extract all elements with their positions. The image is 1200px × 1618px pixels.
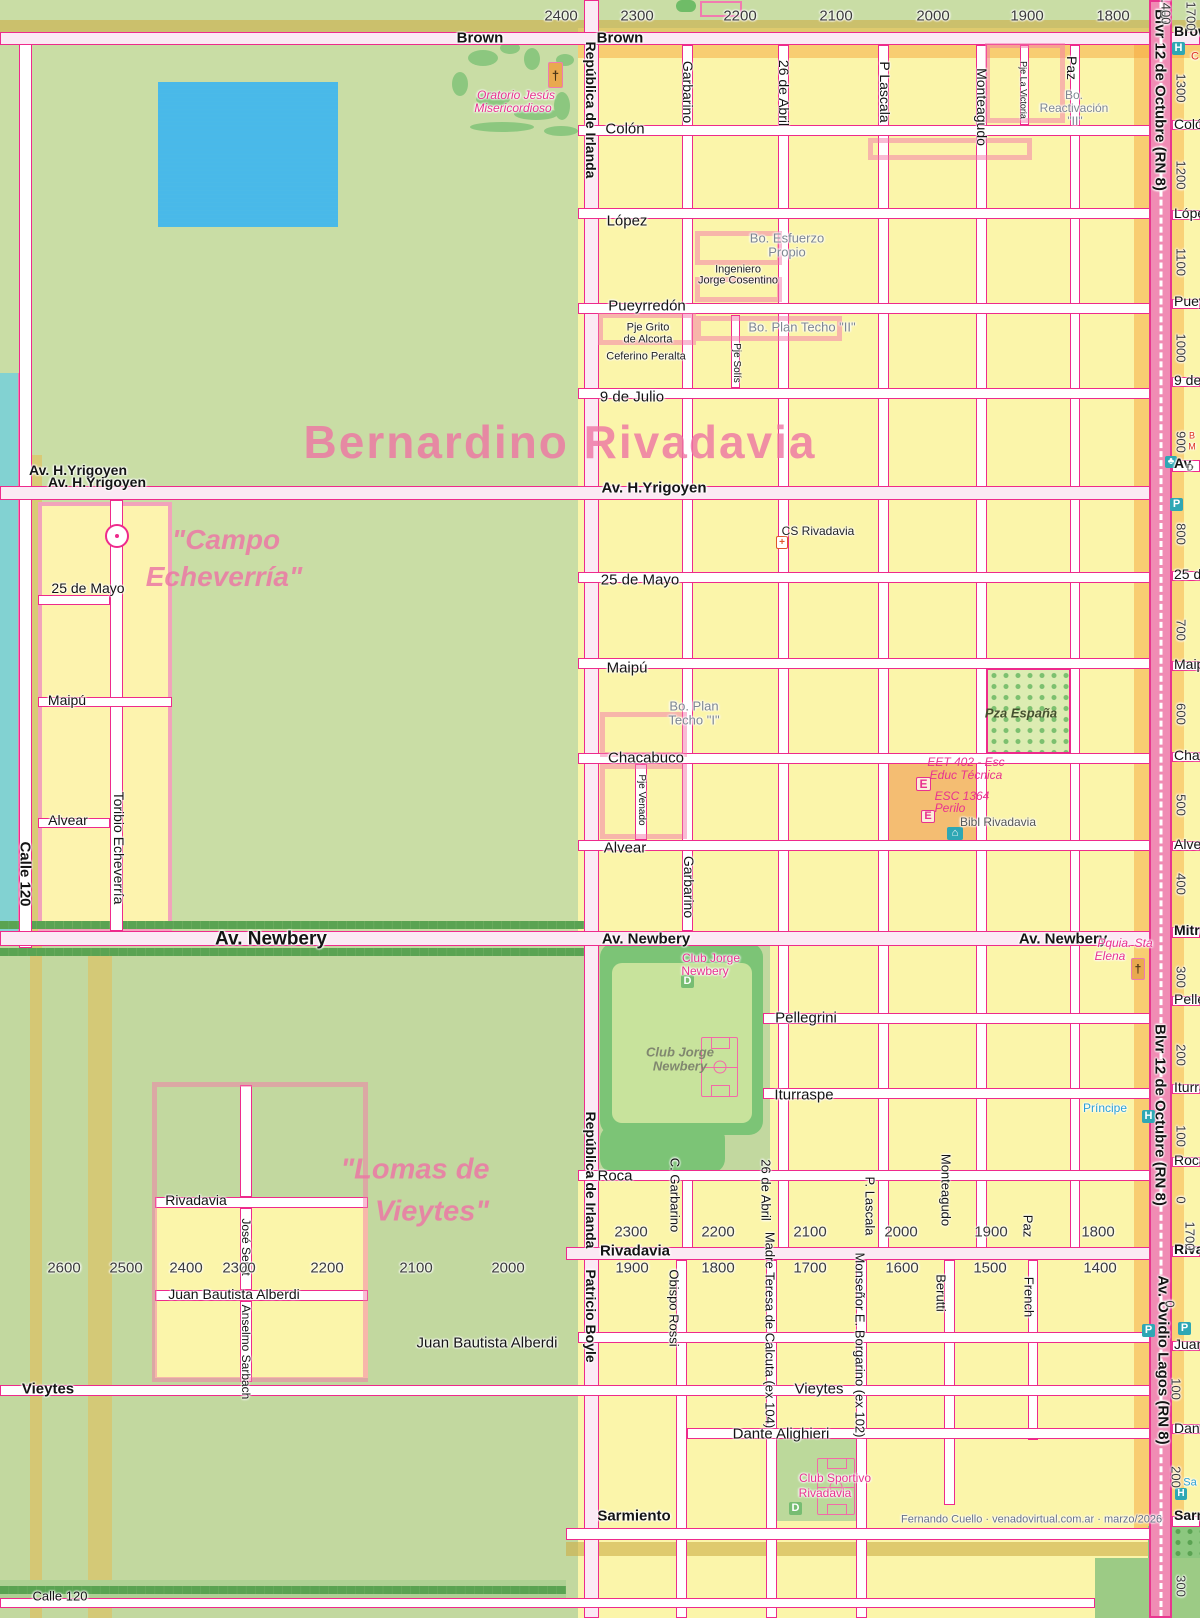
poi-label-principe: Príncipe xyxy=(1083,1102,1127,1114)
street-paz xyxy=(1070,45,1080,1260)
street-label-26-de-abril: 26 de Abril xyxy=(777,60,791,126)
street-label-jb-alberdi: Juan Bautista Alberdi xyxy=(417,1336,558,1351)
street-label-vieytes: Vieytes xyxy=(22,1382,74,1397)
street-label-garbarino: Garbarino xyxy=(682,856,696,918)
street-sarmiento xyxy=(566,1528,1172,1540)
street-9-de-julio xyxy=(578,388,1172,399)
street-label-garbarino: Garbarino xyxy=(681,61,695,123)
block-number: 2000 xyxy=(491,1261,524,1276)
street-label-alvear: Alvear xyxy=(604,841,647,856)
street-label-calle-120: Calle 120 xyxy=(18,841,33,906)
margin-number: 700 xyxy=(1175,619,1188,641)
barrio-label-reactivacion: "II" xyxy=(1067,115,1082,127)
poi-label-cs-rivadavia: CS Rivadavia xyxy=(782,525,855,537)
poi-label-club-newbery: Club Jorge xyxy=(682,952,740,964)
shrub xyxy=(452,72,468,96)
poi-label-pquia: Elena xyxy=(1095,950,1126,962)
margin-number: 1400 xyxy=(1160,0,1173,24)
block-number: 1900 xyxy=(615,1261,648,1276)
street-label-iturraspe: Iturraspe xyxy=(774,1088,833,1103)
edge-label: M xyxy=(1188,443,1196,452)
street-label-anselmo-sarbach: Anselmo Sarbach xyxy=(240,1305,252,1400)
poi-label-eet: Educ Técnica xyxy=(930,769,1003,781)
street-label-madre-teresa: Madre Teresa de Calcuta (ex 104) xyxy=(764,1232,777,1428)
marsh-area xyxy=(158,82,338,227)
margin-label: Sarmiento xyxy=(1174,1508,1200,1522)
street-label-av-newbery: Av. Newbery xyxy=(1019,932,1107,947)
block-number: 1800 xyxy=(701,1261,734,1276)
barrio-label-techo2: Bo. Plan Techo "II" xyxy=(748,321,855,334)
street-label-25-de-mayo: 25 de Mayo xyxy=(601,573,679,588)
margin-number: 1300 xyxy=(1175,74,1188,103)
street-label-monteagudo: Monteagudo xyxy=(975,68,989,146)
street-label-brown: Brown xyxy=(597,31,644,46)
block-number: 1800 xyxy=(1096,9,1129,24)
margin-number: 0 xyxy=(1175,1196,1188,1203)
block-number: 2300 xyxy=(222,1261,255,1276)
hospital-icon: H xyxy=(1175,1488,1187,1500)
church-icon: † xyxy=(548,62,563,88)
block-number: 1500 xyxy=(973,1261,1006,1276)
margin-number: 1100 xyxy=(1175,248,1188,276)
region-title: Bernardino Rivadavia xyxy=(304,419,817,465)
barrio-label-reactivacion: Reactivación xyxy=(1040,102,1109,114)
edge-label: D xyxy=(1187,464,1194,473)
barrio-label-reactivacion: Bo. xyxy=(1065,89,1083,101)
city-map[interactable]: ††+EE⌂DDHHHPPP♣2400230022002100200019001… xyxy=(0,0,1200,1618)
street-label-pje-venado: Pje Venado xyxy=(636,774,646,825)
street-label-pellegrini: Pellegrini xyxy=(775,1011,837,1026)
fuel-icon: P xyxy=(1170,498,1183,511)
poi-label-esc1364: Perilo xyxy=(935,802,966,814)
street-av-newbery xyxy=(0,931,1172,946)
school-icon: E xyxy=(921,810,935,823)
shrub xyxy=(544,126,578,136)
street-label-9-de-julio: 9 de Julio xyxy=(600,390,664,405)
street-25-mayo-oeste xyxy=(38,595,110,605)
street-monteagudo xyxy=(976,45,987,1260)
barrio-label-techo1: Techo "I" xyxy=(668,714,719,727)
street-label-rivadavia: Rivadavia xyxy=(165,1193,226,1207)
margin-number: 1700 xyxy=(1185,2,1198,31)
block-number: 2100 xyxy=(819,9,852,24)
poi-label-sa: Sa xyxy=(1183,1478,1196,1489)
margin-number: 1000 xyxy=(1175,334,1188,363)
street-lopez xyxy=(578,208,1172,219)
margin-number: 100 xyxy=(1175,1125,1188,1147)
margin-label: Pellegrini xyxy=(1174,992,1200,1006)
street-label-rivadavia: Rivadavia xyxy=(600,1244,670,1259)
street-label-pueyrredon: Pueyrredón xyxy=(608,299,686,314)
street-label-av-h-yrigoyen: Av. H.Yrigoyen xyxy=(48,475,146,489)
margin-number: 1200 xyxy=(1175,161,1188,190)
margin-number: 300 xyxy=(1175,1575,1188,1597)
block-number: 2000 xyxy=(916,9,949,24)
margin-number: 400 xyxy=(1175,873,1188,895)
street-calle-120-sur xyxy=(0,1598,1095,1608)
street-label-av-newbery: Av. Newbery xyxy=(602,932,690,947)
street-label-av-h-yrigoyen: Av. H.Yrigoyen xyxy=(601,481,706,496)
block-number: 2400 xyxy=(169,1261,202,1276)
street-label-p-lascala: P. Lascala xyxy=(864,1176,877,1235)
street-av-h-yrigoyen xyxy=(0,486,1172,500)
street-label-cosentino: Jorge Cosentino xyxy=(698,276,778,287)
street-label-dante: Dante Alighieri xyxy=(733,1427,830,1442)
barrio-block-outline xyxy=(868,138,1032,160)
poi-label-club-sportivo: Rivadavia xyxy=(799,1487,852,1499)
shrub xyxy=(554,92,570,120)
street-label-pje-la-victoria: Pje La Victoria xyxy=(1019,61,1028,119)
sarmiento-road-flank xyxy=(566,1542,1200,1556)
barrio-label-techo1: Bo. Plan xyxy=(669,700,718,713)
area-label-campo: Echeverría" xyxy=(146,563,303,591)
street-republica-irlanda xyxy=(584,0,599,1618)
edge-label: C xyxy=(1191,52,1199,63)
street-label-toribio: Toribio Echeverría xyxy=(112,792,126,905)
margin-label: Chacabuco xyxy=(1174,748,1200,762)
fuel-icon: P xyxy=(1142,1324,1155,1337)
block-number: 2300 xyxy=(614,1225,647,1240)
street-26-de-abril xyxy=(778,45,789,1260)
street-label-maipu: Maipú xyxy=(607,661,648,676)
area-label-lomas: Vieytes" xyxy=(375,1198,489,1227)
park-newbery-south xyxy=(600,1125,725,1173)
margin-number: 200 xyxy=(1175,1044,1188,1066)
street-label-republica-irlanda: República de Irlanda xyxy=(584,1112,598,1249)
street-label-chacabuco: Chacabuco xyxy=(608,751,684,766)
street-label-sarmiento: Sarmiento xyxy=(597,1509,670,1524)
sports-icon: D xyxy=(789,1502,802,1515)
street-label-paz: Paz xyxy=(1065,56,1079,80)
shrub xyxy=(468,50,498,66)
street-label-c-garbarino: C. Garbarino xyxy=(669,1158,682,1232)
street-label-lopez: López xyxy=(607,214,648,229)
attribution: Fernando Cuello · venadovirtual.com.ar ·… xyxy=(901,1515,1162,1526)
street-label-berutti: Berutti xyxy=(935,1274,948,1312)
street-label-vieytes: Vieytes xyxy=(795,1382,844,1397)
barrio-label-esfuerzo: Bo. Esfuerzo xyxy=(750,232,824,245)
block-number: 2300 xyxy=(620,9,653,24)
roundabout-icon xyxy=(105,524,129,548)
margin-label: Roca xyxy=(1174,1153,1200,1167)
edge-label: B xyxy=(1189,432,1195,441)
poi-label-club-newbery-field: Newbery xyxy=(653,1060,707,1073)
poi-label-pza-espana: Pza España xyxy=(985,707,1057,720)
street-label-av-newbery: Av. Newbery xyxy=(215,930,327,949)
poi-label-club-sportivo: Club Sportivo xyxy=(799,1472,871,1484)
block-number: 1800 xyxy=(1081,1225,1114,1240)
margin-label: Mitre xyxy=(1174,923,1200,937)
shrub xyxy=(470,122,534,132)
street-label-paz: Paz xyxy=(1022,1215,1035,1237)
poi-label-pquia: Pquia. Sta xyxy=(1097,937,1152,949)
street-label-blvd: Blvr 12 de Octubre (RN 8) xyxy=(1153,1024,1168,1206)
block-number: 2000 xyxy=(884,1225,917,1240)
block-number: 1900 xyxy=(1010,9,1043,24)
margin-label: Iturraspe xyxy=(1174,1080,1200,1094)
area-label-lomas: "Lomas de xyxy=(340,1156,489,1185)
margin-number: 1700 xyxy=(1184,1222,1197,1251)
poi-label-oratorio: Misericordioso xyxy=(474,102,551,114)
street-label-republica-irlanda: República de Irlanda xyxy=(584,42,598,179)
margin-label: López xyxy=(1174,206,1200,220)
margin-number: 800 xyxy=(1175,523,1188,545)
brown-road-flank xyxy=(578,45,1200,58)
block-number: 2200 xyxy=(310,1261,343,1276)
street-label-grito-alcorta: de Alcorta xyxy=(624,335,673,346)
margin-label: Juan Bautista Alberdi xyxy=(1174,1337,1200,1351)
street-label-borgarino: Monseñor E. Borgarino (ex 102) xyxy=(854,1253,867,1438)
block-number: 1400 xyxy=(1083,1261,1116,1276)
block-number: 1600 xyxy=(885,1261,918,1276)
poi-label-eet: EET 402 - Esc xyxy=(927,756,1004,768)
calle120-road-band xyxy=(88,950,112,1618)
margin-number: 300 xyxy=(1175,966,1188,988)
fuel-icon: P xyxy=(1178,1322,1191,1335)
church-icon: † xyxy=(1131,958,1145,980)
street-label-calle-120: Calle 120 xyxy=(33,1590,88,1603)
street-label-grito-alcorta: Pje Grito xyxy=(627,323,670,334)
street-label-roca: Roca xyxy=(597,1169,632,1184)
street-label-colon: Colón xyxy=(605,122,644,137)
barrio-label-esfuerzo: Propio xyxy=(768,246,806,259)
poi-label-club-newbery-field: Club Jorge xyxy=(646,1046,714,1059)
hospital-icon: H xyxy=(1172,42,1185,55)
margin-number: 600 xyxy=(1175,703,1188,725)
top-green-blob xyxy=(676,0,696,12)
street-label-25-de-mayo: 25 de Mayo xyxy=(51,581,124,595)
street-label-26-de-abril: 26 de Abril xyxy=(760,1159,773,1220)
block-number: 2600 xyxy=(47,1261,80,1276)
block-number: 2200 xyxy=(723,9,756,24)
street-label-patricio-boyle: Patricio Boyle xyxy=(584,1269,598,1362)
street-p-lascala xyxy=(878,45,889,1260)
street-label-brown: Brown xyxy=(457,31,504,46)
street-maipu xyxy=(578,658,1172,669)
block-number: 2400 xyxy=(544,9,577,24)
street-label-ceferino: Ceferino Peralta xyxy=(606,352,686,363)
street-label-p-lascala: P Lascala xyxy=(878,61,892,122)
margin-label: Pueyrredón xyxy=(1174,294,1200,308)
street-alvear xyxy=(578,840,1172,851)
street-label-monteagudo: Monteagudo xyxy=(940,1154,953,1226)
street-label-jb-alberdi: Juan Bautista Alberdi xyxy=(168,1287,300,1301)
margin-label: Maipú xyxy=(1174,657,1200,671)
area-label-campo: "Campo xyxy=(172,526,280,554)
block-number: 1700 xyxy=(793,1261,826,1276)
street-colon xyxy=(578,125,1172,136)
margin-label: Alvear xyxy=(1174,837,1200,851)
shrub xyxy=(524,48,540,70)
block-number: 2500 xyxy=(109,1261,142,1276)
barrio-lomas-outline xyxy=(152,1082,368,1382)
poi-label-biblioteca: Bibl Rivadavia xyxy=(960,816,1036,828)
poi-label-oratorio: Oratorio Jesús xyxy=(477,89,555,101)
margin-label: Colón xyxy=(1174,117,1200,131)
margin-label: Dante Alighieri xyxy=(1174,1421,1200,1435)
street-vieytes xyxy=(0,1385,1172,1396)
margin-number: 500 xyxy=(1175,794,1188,816)
street-label-maipu: Maipú xyxy=(48,693,86,707)
margin-number: 0 xyxy=(1164,1300,1177,1307)
block-number: 2100 xyxy=(793,1225,826,1240)
margin-label: 9 de Julio xyxy=(1174,373,1200,387)
margin-number: 200 xyxy=(1170,1466,1183,1488)
street-label-french: French xyxy=(1023,1277,1036,1317)
street-label-blvd: Blvr 12 de Octubre (RN 8) xyxy=(1153,9,1168,191)
margin-number: 900 xyxy=(1175,431,1188,453)
margin-label: 25 de Mayo xyxy=(1174,567,1200,581)
block-number: 2200 xyxy=(701,1225,734,1240)
street-label-obispo-rossi: Obispo Rossi xyxy=(668,1269,681,1346)
block-number: 1900 xyxy=(974,1225,1007,1240)
block-number: 2100 xyxy=(399,1261,432,1276)
blvd-west-flank xyxy=(1134,45,1149,1535)
street-label-pje-solis: Pje Solís xyxy=(731,343,741,382)
street-label-alvear: Alvear xyxy=(48,813,88,827)
poi-label-club-newbery: Newbery xyxy=(681,965,728,977)
margin-number: 100 xyxy=(1170,1378,1183,1400)
